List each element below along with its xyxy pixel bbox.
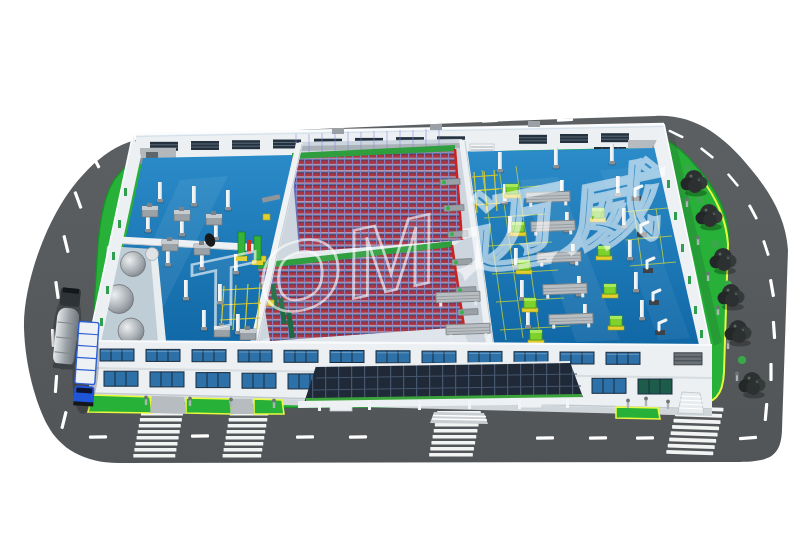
walkway	[150, 396, 186, 414]
walkway	[230, 399, 254, 414]
storage-tank	[118, 318, 144, 344]
factory-render: TOM 迈威	[0, 0, 800, 557]
lawn-patch	[88, 395, 152, 413]
lawn-patch	[616, 407, 660, 419]
green-window	[638, 379, 672, 394]
storage-tank	[121, 252, 146, 277]
entrance-steps	[430, 412, 488, 424]
lawn-patch	[254, 399, 284, 414]
side-stairs	[678, 392, 704, 414]
grille-window	[674, 353, 702, 365]
lawn-patch	[186, 398, 232, 414]
